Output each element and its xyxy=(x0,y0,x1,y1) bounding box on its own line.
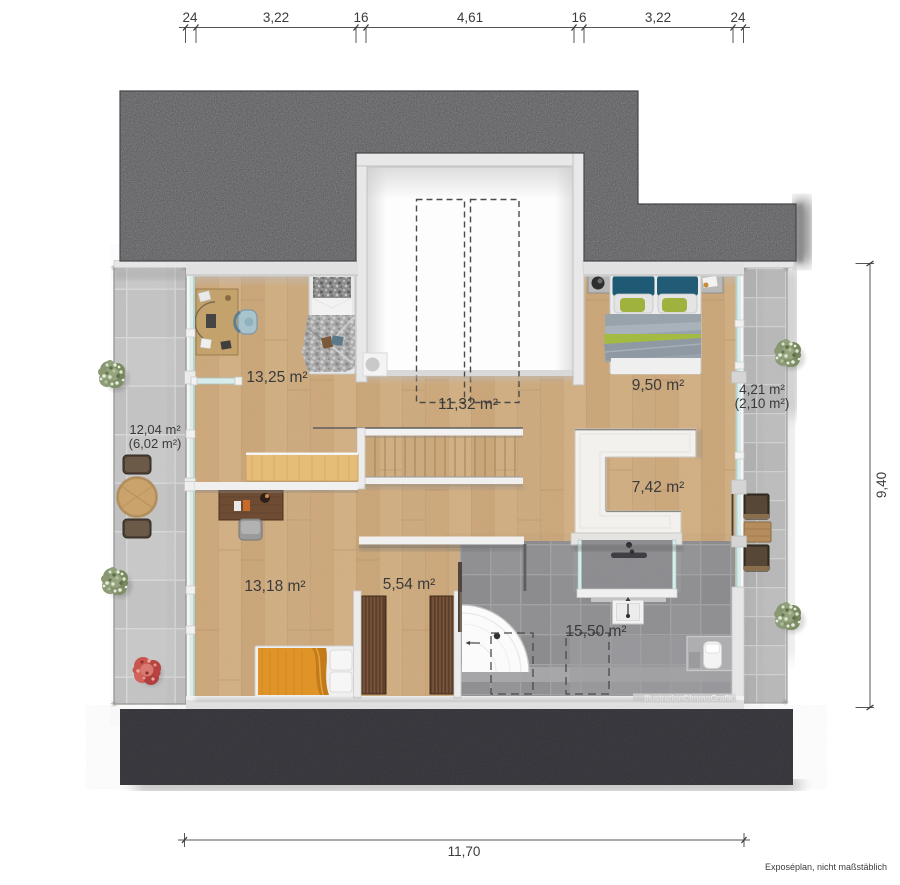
svg-text:11,70: 11,70 xyxy=(448,844,481,859)
svg-text:24: 24 xyxy=(182,10,198,25)
svg-text:Exposéplan, nicht maßstäblich: Exposéplan, nicht maßstäblich xyxy=(765,862,887,872)
svg-text:16: 16 xyxy=(571,10,586,25)
svg-text:7,42 m²: 7,42 m² xyxy=(632,479,685,496)
svg-text:3,22: 3,22 xyxy=(263,10,289,25)
svg-text:13,25 m²: 13,25 m² xyxy=(246,369,307,386)
svg-text:9,40: 9,40 xyxy=(874,472,889,498)
svg-text:11,32 m²: 11,32 m² xyxy=(438,396,498,413)
svg-text:16: 16 xyxy=(353,10,368,25)
svg-text:✳: ✳ xyxy=(110,699,118,709)
svg-text:12,04 m²: 12,04 m² xyxy=(129,422,181,437)
svg-text:3,22: 3,22 xyxy=(645,10,671,25)
svg-text:(6,02 m²): (6,02 m²) xyxy=(129,436,182,451)
svg-text:24: 24 xyxy=(730,10,746,25)
svg-text:4,61: 4,61 xyxy=(457,10,483,25)
svg-text:15,50 m²: 15,50 m² xyxy=(565,623,626,640)
svg-text:13,18 m²: 13,18 m² xyxy=(244,578,305,595)
svg-text:(2,10 m²): (2,10 m²) xyxy=(735,396,790,411)
svg-text:✳: ✳ xyxy=(781,697,789,707)
svg-text:5,54 m²: 5,54 m² xyxy=(383,576,436,593)
svg-text:4,21 m²: 4,21 m² xyxy=(739,382,785,397)
svg-text:9,50 m²: 9,50 m² xyxy=(632,377,685,394)
